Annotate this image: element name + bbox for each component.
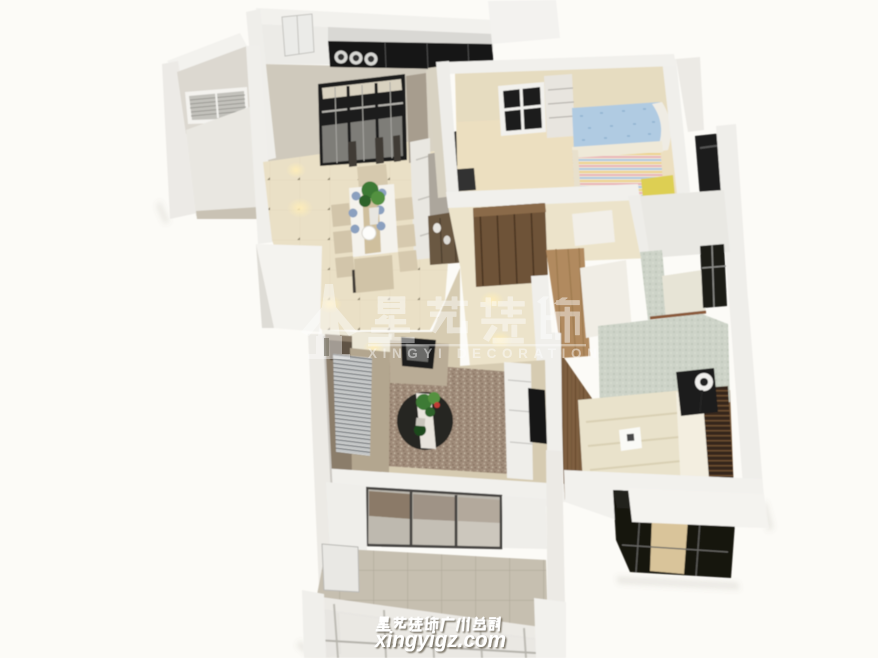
svg-text:XINGYI DECORATION: XINGYI DECORATION <box>368 346 602 361</box>
svg-text:xingyigz.com: xingyigz.com <box>374 627 506 652</box>
